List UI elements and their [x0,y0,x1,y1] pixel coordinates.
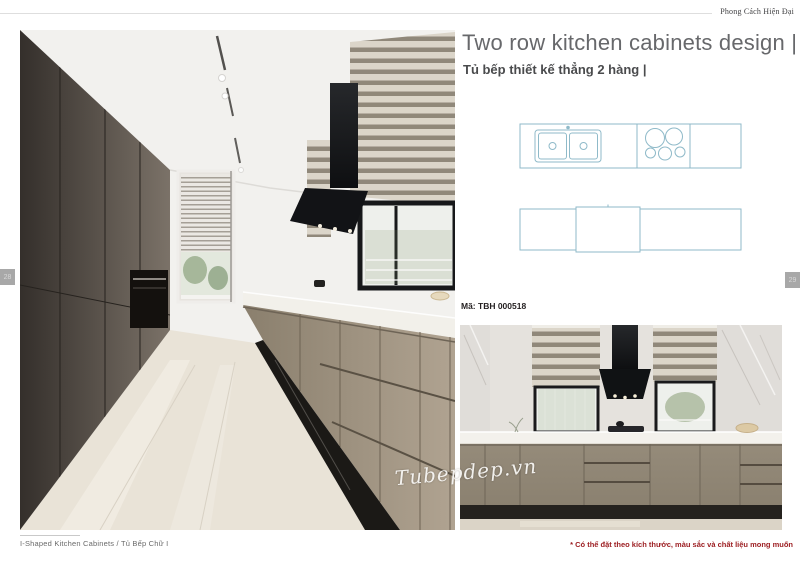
countertop-2 [460,432,782,444]
page-subtitle: Tủ bếp thiết kế thẳng 2 hàng | [463,62,646,77]
footer-section-label: I-Shaped Kitchen Cabinets / Tủ Bếp Chữ I [20,539,168,548]
page-number-right-tab: 29 [785,272,800,288]
faucet-dot [566,126,570,130]
right-window [653,325,717,432]
main-kitchen-photo [20,30,455,530]
left-window [532,325,600,432]
footer-rule [20,535,80,536]
category-label: Phong Cách Hiện Đại [720,7,794,16]
secondary-kitchen-photo [460,325,782,530]
page-number-left: 28 [4,274,12,281]
page-number-right: 29 [789,277,797,284]
product-code: Mã: TBH 000518 [461,301,526,311]
cabinet-plan-diagram [505,110,795,260]
countertop-plan [520,124,741,168]
cooktop-burners [646,128,686,160]
footer-note: * Có thể đặt theo kích thước, màu sắc và… [570,540,793,549]
catalog-page: Phong Cách Hiện Đại [0,0,800,565]
page-number-left-tab: 28 [0,269,15,285]
built-in-oven [130,270,168,328]
plinth [460,505,782,519]
sink-unit [535,130,601,162]
zebra-blind-window [350,32,455,206]
page-title: Two row kitchen cabinets design | [462,30,797,56]
base-cabinets-2 [460,444,782,505]
back-glass-door [178,171,234,302]
side-window [360,203,455,288]
cabinet-elevation-plan [520,205,741,253]
floor-sheen-3 [520,521,640,527]
top-rule [0,13,712,14]
